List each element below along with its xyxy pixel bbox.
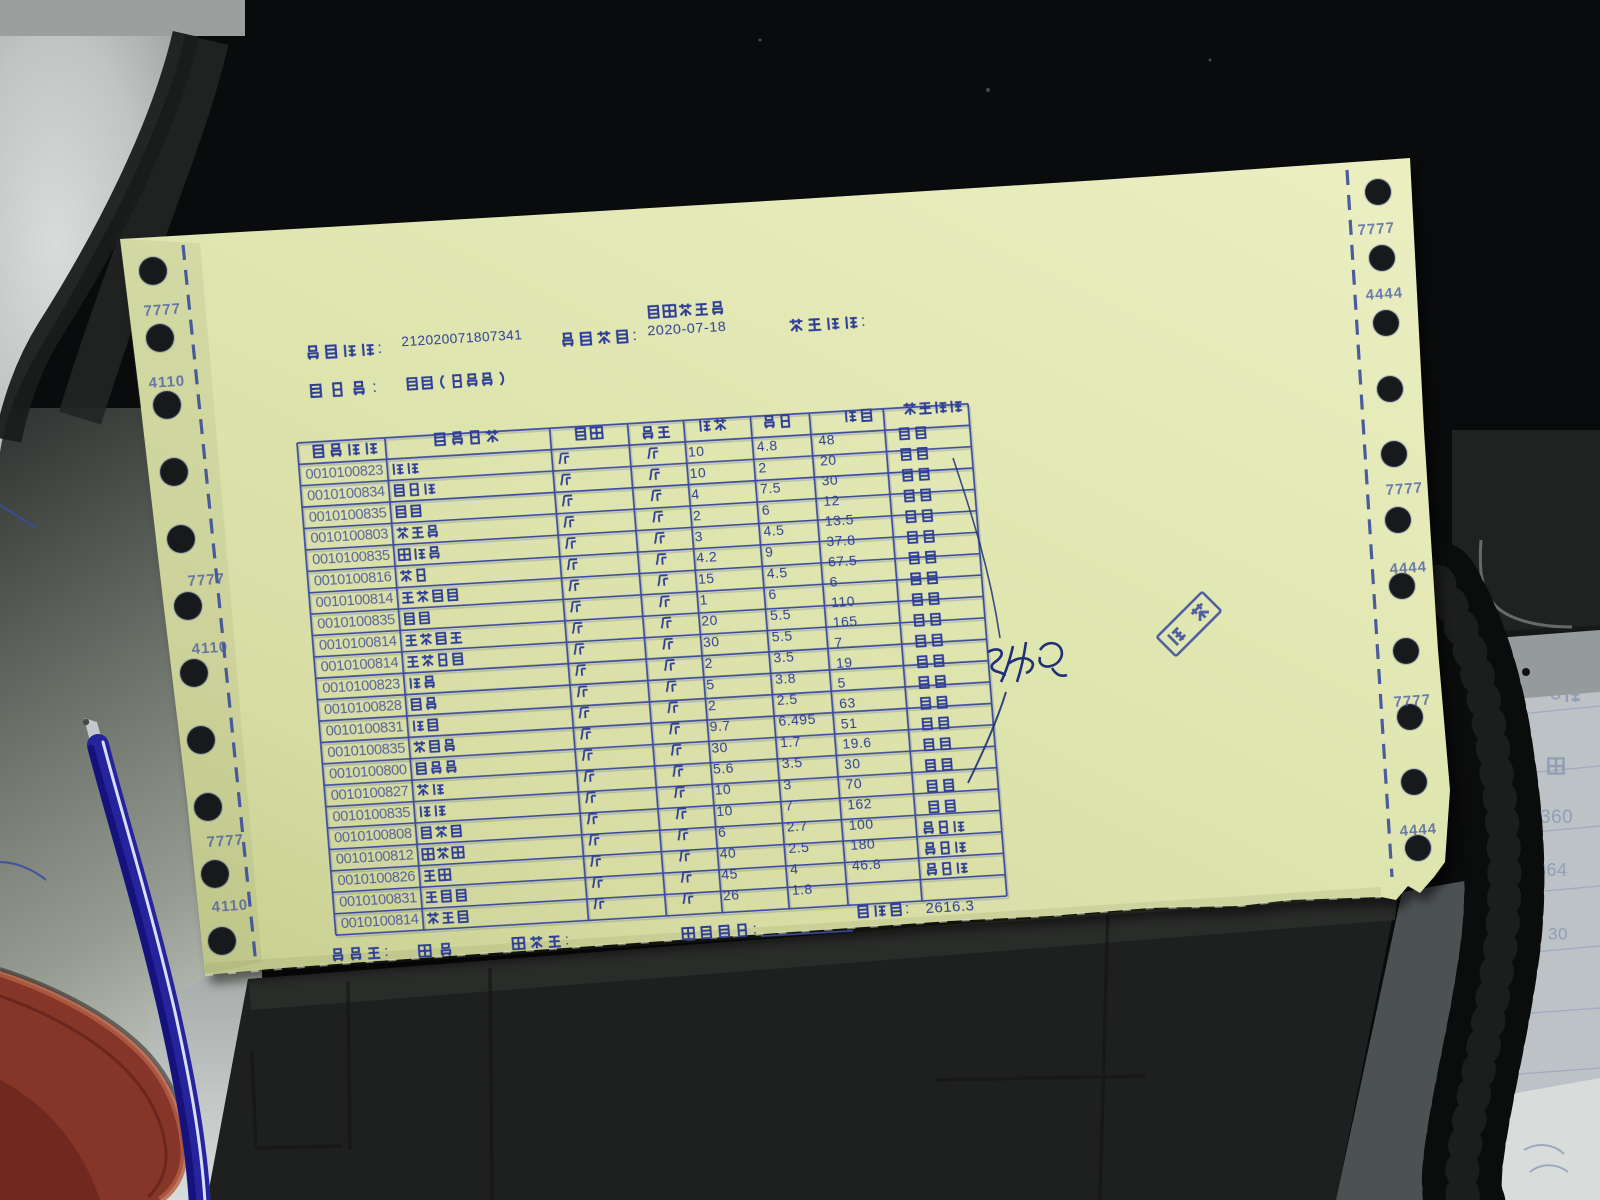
- svg-text:4110: 4110: [191, 638, 229, 658]
- svg-text:165: 165: [832, 613, 858, 630]
- svg-text:7777: 7777: [1357, 219, 1395, 239]
- svg-text:30: 30: [821, 472, 839, 489]
- svg-text::: :: [377, 340, 385, 357]
- svg-text:2616.3: 2616.3: [925, 898, 975, 917]
- svg-text:10: 10: [689, 464, 707, 481]
- svg-text:40: 40: [719, 845, 737, 862]
- svg-text:10: 10: [716, 802, 734, 819]
- svg-text:9: 9: [764, 544, 774, 560]
- svg-text:2.5: 2.5: [788, 839, 810, 856]
- svg-text:5.5: 5.5: [769, 606, 791, 623]
- svg-text:12: 12: [823, 492, 841, 509]
- svg-text:162: 162: [847, 795, 873, 812]
- svg-text:6: 6: [768, 586, 778, 602]
- svg-text:4444: 4444: [1365, 284, 1403, 304]
- svg-text:7: 7: [834, 634, 844, 650]
- svg-text:51: 51: [840, 715, 858, 732]
- svg-text:26: 26: [722, 887, 740, 904]
- svg-text:20: 20: [819, 452, 837, 469]
- svg-text:63: 63: [839, 694, 857, 711]
- svg-text:30: 30: [1548, 924, 1568, 943]
- svg-text:2: 2: [707, 697, 717, 713]
- svg-text:6: 6: [761, 502, 771, 518]
- svg-text:45: 45: [721, 866, 739, 883]
- svg-text:7.5: 7.5: [759, 480, 781, 497]
- svg-text:2.5: 2.5: [776, 691, 798, 708]
- svg-text:4.5: 4.5: [763, 522, 785, 539]
- svg-text:9.7: 9.7: [709, 718, 731, 735]
- svg-text:3.8: 3.8: [774, 670, 796, 687]
- svg-text:3: 3: [783, 776, 793, 792]
- svg-text:70: 70: [845, 775, 863, 792]
- svg-text:3: 3: [694, 528, 704, 544]
- svg-text:7777: 7777: [187, 570, 225, 590]
- svg-text:5: 5: [837, 675, 847, 691]
- svg-text:19: 19: [835, 654, 853, 671]
- svg-text:30: 30: [711, 739, 729, 756]
- svg-text::: :: [632, 327, 640, 344]
- svg-text:7777: 7777: [1385, 479, 1423, 499]
- svg-text:1: 1: [699, 591, 709, 607]
- svg-text:4110: 4110: [211, 896, 249, 916]
- svg-text:30: 30: [702, 633, 720, 650]
- svg-text:2: 2: [758, 459, 768, 475]
- svg-text:10: 10: [687, 443, 705, 460]
- svg-text:360: 360: [1540, 807, 1573, 828]
- svg-text:180: 180: [850, 836, 876, 853]
- svg-text:100: 100: [848, 815, 874, 832]
- svg-text:1.8: 1.8: [791, 881, 813, 898]
- svg-text:4.8: 4.8: [756, 437, 778, 454]
- svg-text:5: 5: [706, 676, 716, 692]
- svg-text:19.6: 19.6: [842, 734, 872, 751]
- svg-text:4.2: 4.2: [696, 549, 718, 566]
- svg-text::: :: [860, 313, 868, 330]
- svg-text::: :: [372, 379, 383, 396]
- svg-text:7: 7: [784, 797, 794, 813]
- svg-text:5.6: 5.6: [712, 760, 734, 777]
- svg-text:4110: 4110: [148, 372, 186, 392]
- svg-text:4444: 4444: [1399, 820, 1437, 840]
- svg-text:4: 4: [691, 486, 701, 502]
- svg-text:4.5: 4.5: [766, 564, 788, 581]
- svg-text::: :: [564, 933, 572, 949]
- svg-text:5.5: 5.5: [771, 628, 793, 645]
- svg-text:110: 110: [831, 593, 856, 610]
- svg-text:4444: 4444: [1389, 558, 1427, 578]
- svg-text:15: 15: [697, 570, 715, 587]
- svg-text:30: 30: [843, 755, 861, 772]
- svg-text:3.5: 3.5: [773, 649, 795, 666]
- svg-text:4: 4: [789, 861, 799, 877]
- svg-text:2: 2: [704, 655, 714, 671]
- svg-text:6.495: 6.495: [778, 711, 817, 729]
- svg-text:1.7: 1.7: [779, 733, 801, 750]
- svg-text:48: 48: [818, 431, 836, 448]
- svg-text::: :: [384, 944, 392, 960]
- svg-text:3.5: 3.5: [781, 754, 803, 771]
- svg-text:2: 2: [692, 507, 702, 523]
- svg-text:13.5: 13.5: [824, 512, 854, 529]
- svg-text::: :: [752, 922, 760, 938]
- svg-text:20: 20: [701, 612, 719, 629]
- svg-text:7777: 7777: [1393, 691, 1431, 711]
- svg-text:6: 6: [717, 824, 727, 840]
- svg-text:7777: 7777: [206, 831, 244, 851]
- svg-text:7777: 7777: [143, 300, 181, 320]
- svg-text:2.7: 2.7: [786, 818, 808, 835]
- svg-text:37.8: 37.8: [826, 532, 856, 549]
- svg-text:6: 6: [829, 574, 839, 590]
- svg-text:67.5: 67.5: [827, 552, 857, 569]
- svg-text:46.8: 46.8: [851, 856, 881, 873]
- svg-text:10: 10: [714, 781, 732, 798]
